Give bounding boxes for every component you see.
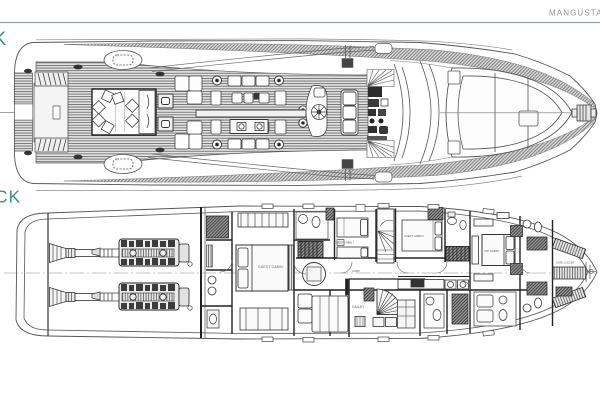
svg-text:LOBBY: LOBBY [352, 270, 361, 273]
svg-text:CK: CK [0, 187, 21, 207]
svg-text:MANGUSTA 108: MANGUSTA 108 [549, 9, 600, 18]
svg-text:GUEST CABIN 2: GUEST CABIN 2 [404, 234, 424, 238]
svg-text:GUEST CABIN 1: GUEST CABIN 1 [335, 241, 355, 245]
svg-text:GALLEY: GALLEY [352, 305, 365, 309]
svg-text:LINEN LOCKER: LINEN LOCKER [556, 262, 575, 265]
svg-text:GUEST CABIN: GUEST CABIN [258, 265, 283, 269]
svg-text:K: K [0, 29, 7, 50]
svg-text:VIP CABIN: VIP CABIN [484, 249, 499, 253]
